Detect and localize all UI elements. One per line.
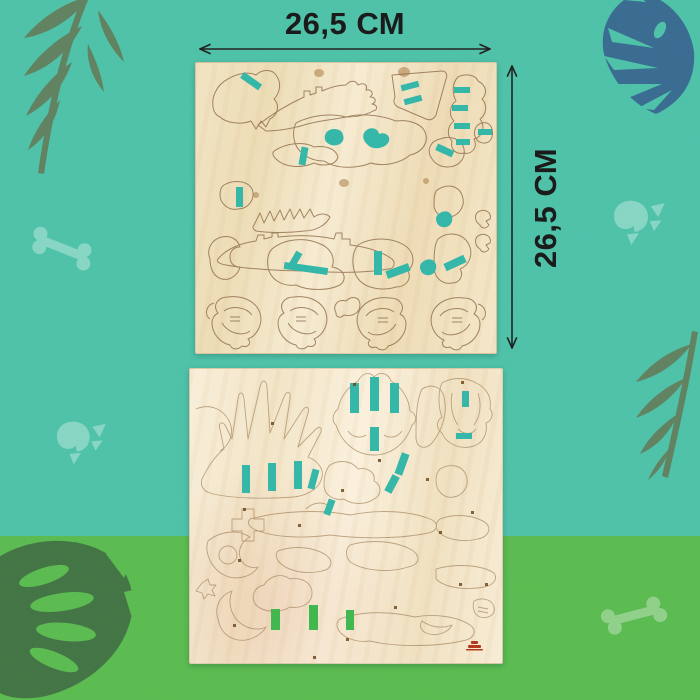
plywood-board-top [195,62,497,354]
cut-outlines [196,374,496,646]
cut-outlines [207,71,493,350]
teal-painted-slots [242,377,472,516]
board-bottom-cut-pattern [190,369,502,663]
product-photo-scene: 26,5 СМ 26,5 СМ [0,0,700,700]
width-dimension-label: 26,5 СМ [196,6,494,42]
width-dimension-arrow [196,42,494,56]
board-top-cut-pattern [196,63,496,353]
height-dimension-arrow [505,62,519,352]
plywood-board-bottom [189,368,503,664]
green-painted-slots [271,605,354,630]
maker-logo-stamp [466,641,483,651]
height-dimension-label: 26,5 СМ [528,94,564,322]
